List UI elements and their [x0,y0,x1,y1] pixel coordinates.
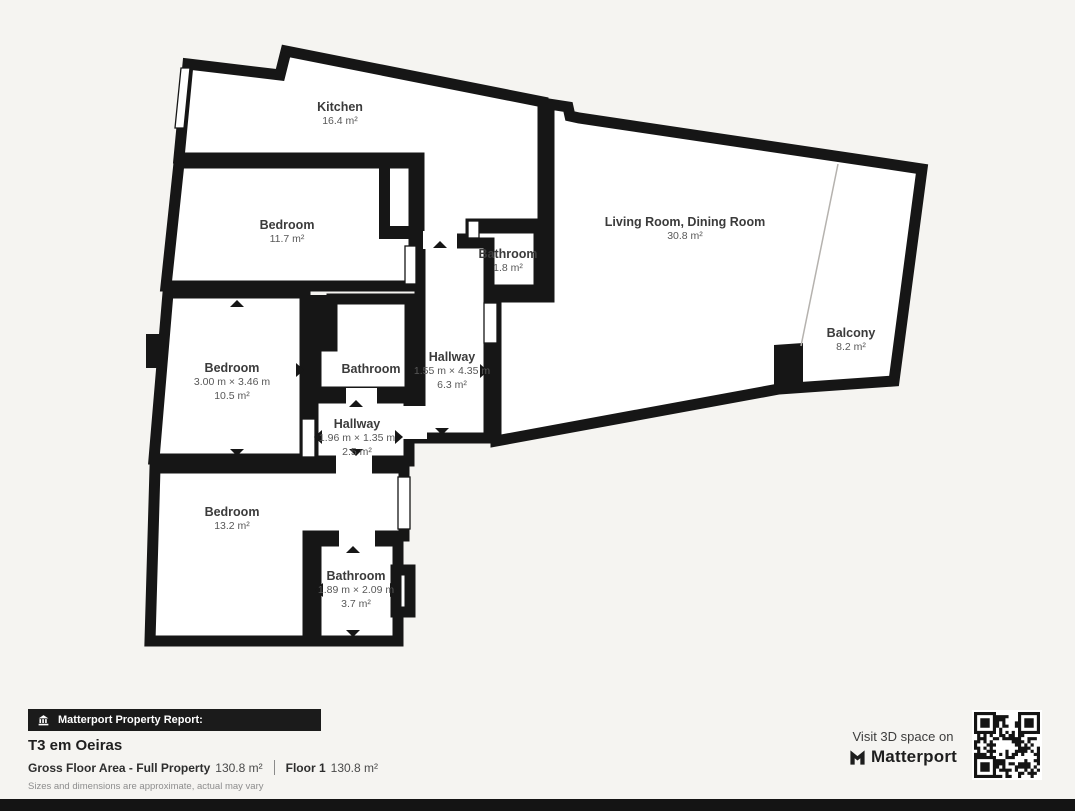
matterport-logo: Matterport [849,747,957,767]
bedroom2-door-slot [302,419,315,457]
qr-code [972,710,1042,780]
report-banner: Matterport Property Report: [28,709,321,731]
building-icon [37,714,50,727]
bathroom-bottom-walls [316,541,398,641]
balcony-pillar [774,343,803,393]
floor-label: Floor 1 [286,761,326,775]
bathroom-bottom-door-gap [339,530,375,548]
bathroom-mid-door-gap [346,388,377,404]
stats-divider [274,760,275,775]
property-report-page: Kitchen 16.4 m² Bedroom 11.7 m² Bathroom… [0,0,1075,811]
bottom-bar [0,799,1075,811]
floor-value: 130.8 m² [331,761,378,775]
living-room-door-slot [484,303,497,343]
bedroom2-walls [154,293,305,459]
hallway-small-walls [313,398,409,461]
visit-3d-text: Visit 3D space on [849,729,957,744]
floorplan [0,0,1075,700]
gross-floor-area-label: Gross Floor Area - Full Property [28,761,210,775]
matterport-m-icon [849,749,866,766]
entry-door-slot [398,477,410,529]
hallway-main-walls [420,243,489,438]
hallway-bedroom3-door-gap [336,454,372,475]
visit-3d-block: Visit 3D space on Matterport [849,729,957,767]
disclaimer-text: Sizes and dimensions are approximate, ac… [28,781,264,792]
bathroom-top-door-slot [468,221,479,238]
gross-floor-area-value: 130.8 m² [215,761,262,775]
bathroom-bottom-niche [396,570,410,612]
matterport-wordmark: Matterport [871,747,957,767]
floorplan-walls [150,51,922,641]
report-banner-label: Matterport Property Report: [58,714,203,726]
bedroom1-door-slot [405,246,416,284]
bedroom1-walls [166,163,414,286]
area-stats: Gross Floor Area - Full Property 130.8 m… [28,760,378,775]
property-title: T3 em Oeiras [28,737,122,754]
hallway-hallway-opening [403,406,427,439]
living-balcony-walls [496,104,922,441]
